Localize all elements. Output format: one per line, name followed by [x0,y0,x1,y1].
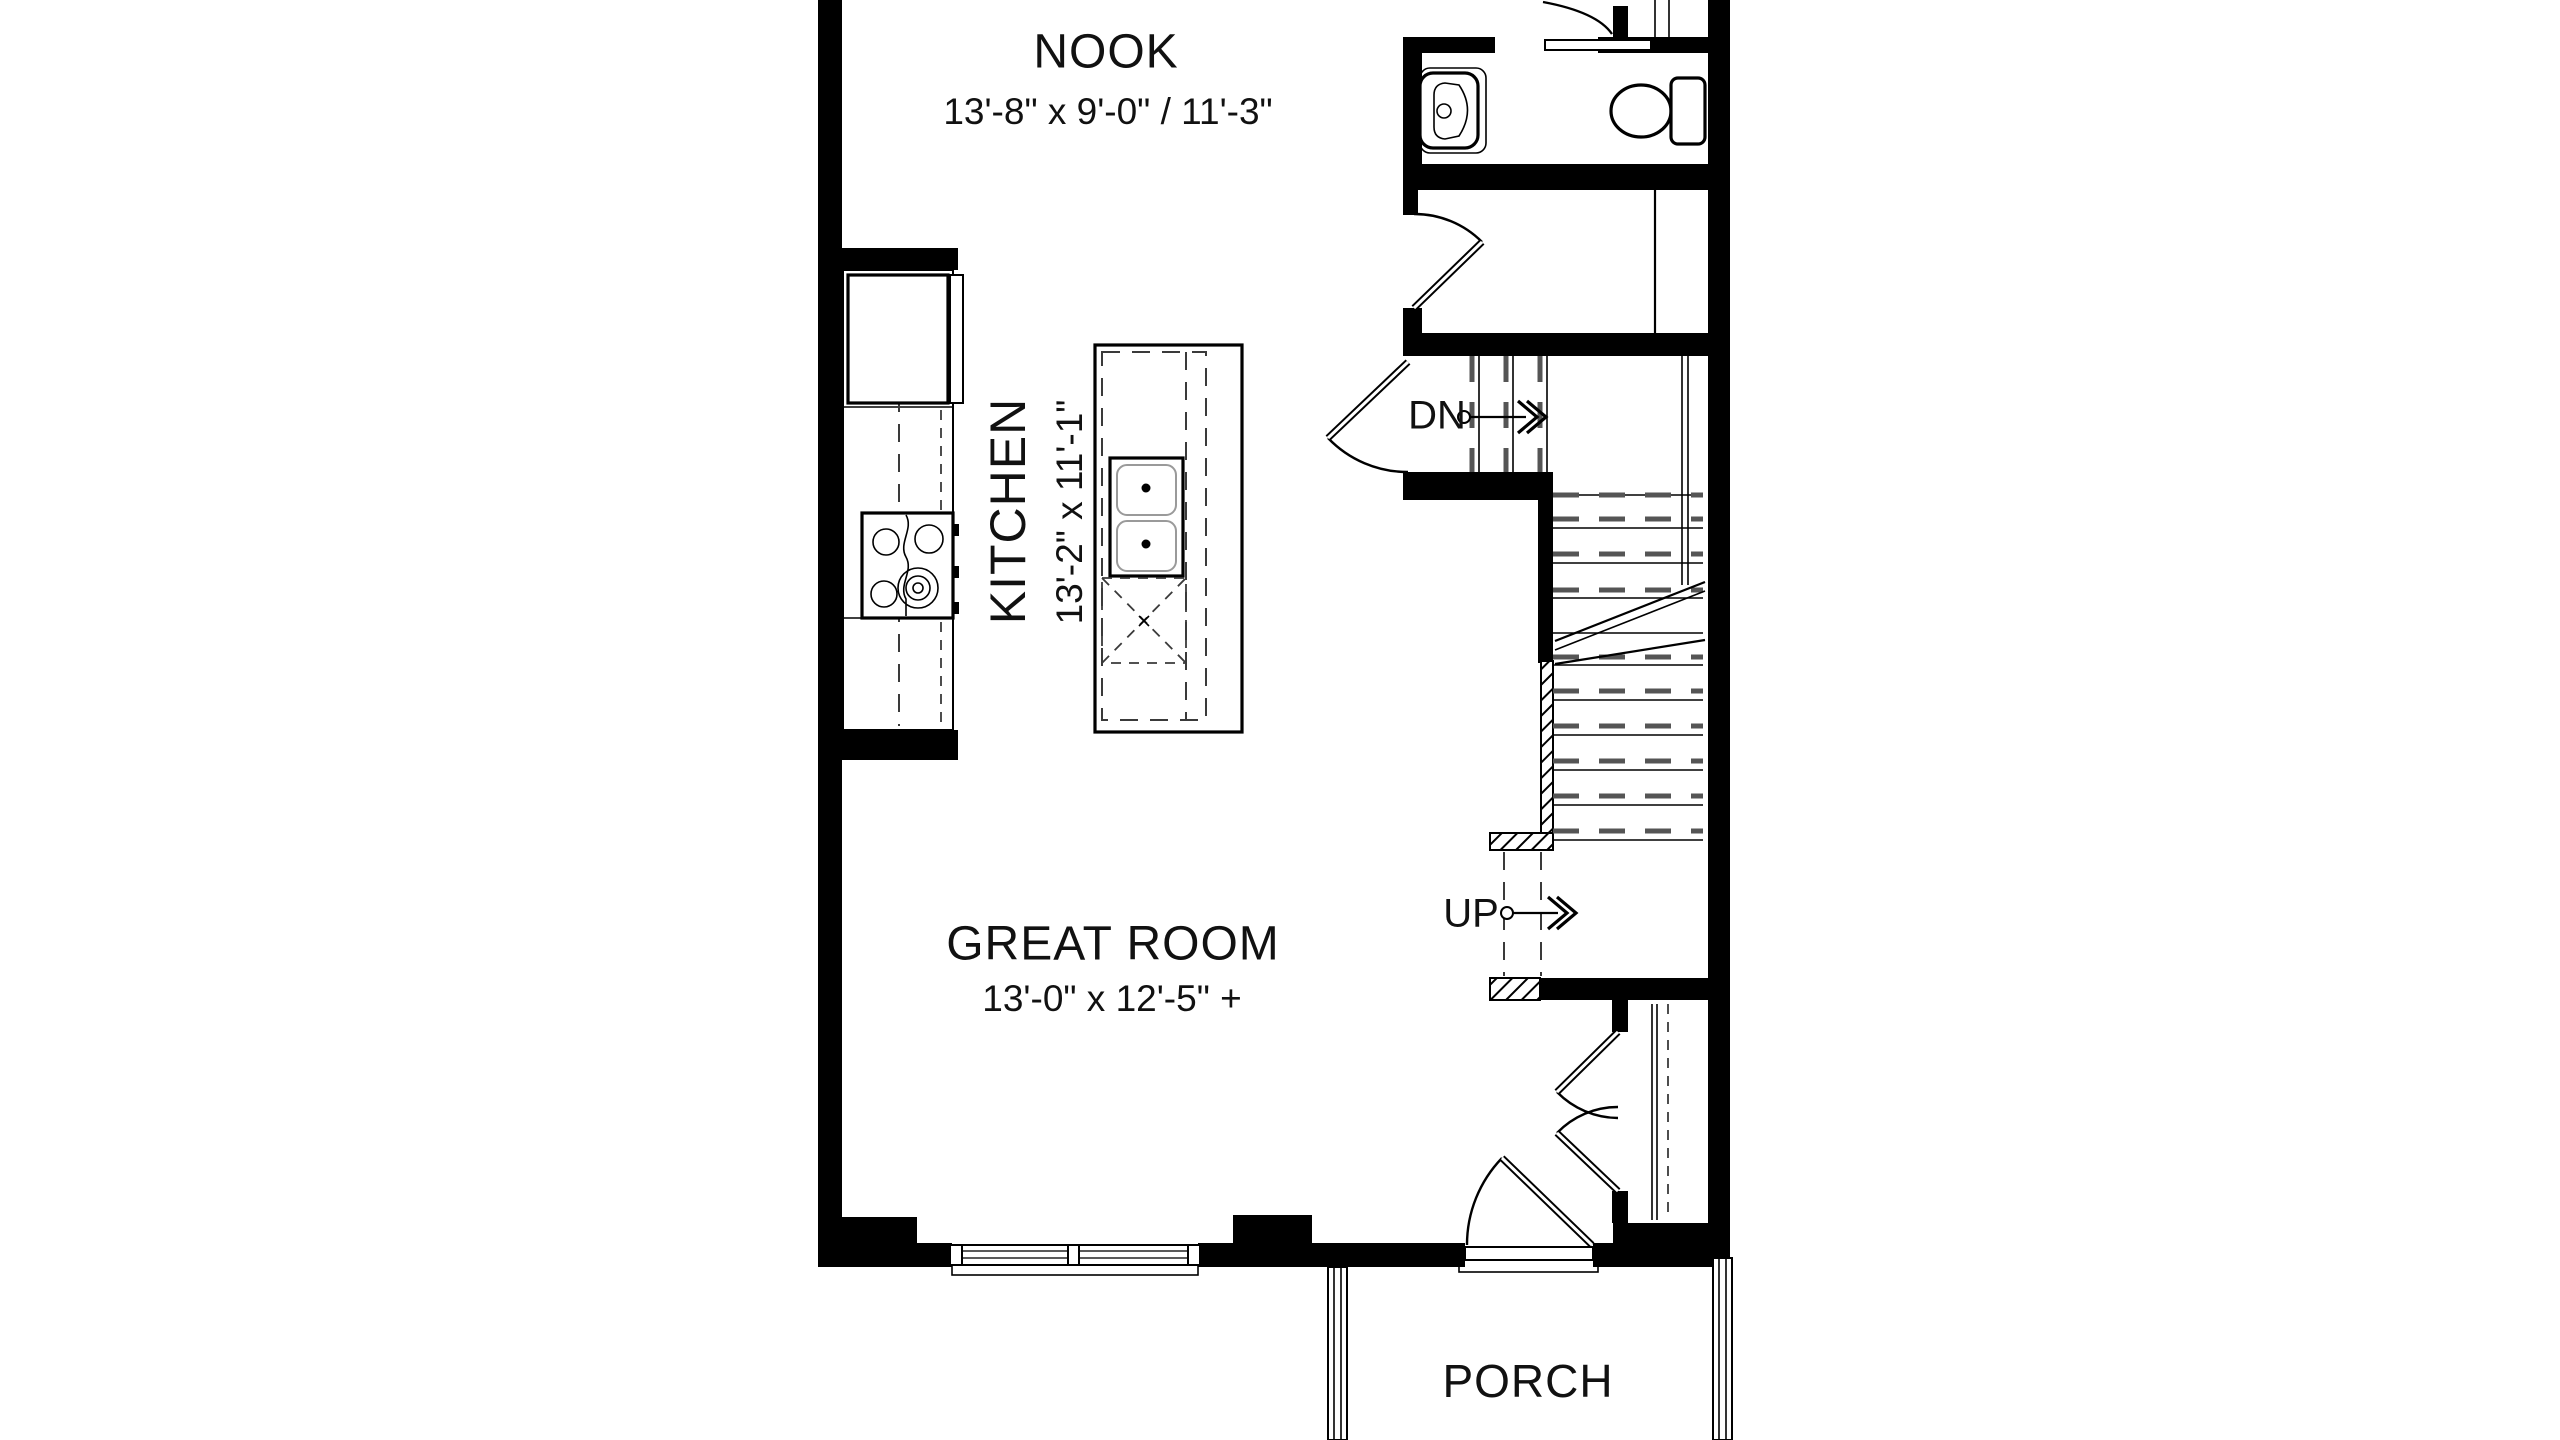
entry-closet-doors [1557,1032,1618,1191]
window-jamb-right [1188,1245,1200,1265]
floor-plan: NOOK 13'-8" x 9'-0" / 11'-3" KITCHEN 13'… [0,0,2560,1440]
stairs-up-treads [1553,495,1703,840]
range-knob [952,524,959,536]
closet-wall-bottom [1613,1223,1709,1247]
entry-closet [1652,1004,1668,1220]
front-door-threshold [1459,1247,1598,1272]
interior-walls [842,6,1710,1247]
stairs-down-label: DN [1408,394,1466,439]
kitchen-wall-top [842,248,958,270]
stairs-up [1501,495,1705,976]
left-exterior-wall [818,0,842,1267]
closet-jamb-bottom [1612,1191,1628,1223]
hall-wall-stub-lower [1403,308,1422,335]
upper-door-swing-cutoff [1543,2,1612,34]
kitchen-label: KITCHEN [979,398,1037,624]
wall-stub-above-bath [1613,6,1628,37]
island-sink [1110,458,1183,576]
front-door [1467,1158,1592,1245]
stair-half-wall-stub-lower [1490,978,1540,1000]
stair-wall-bottom [1540,978,1710,1000]
range-knob [952,602,959,614]
porch-railing-left [1328,1267,1347,1440]
kitchen-dimensions: 13'-2" x 11'-1" [1049,400,1091,625]
pocket-door [1545,40,1651,50]
great-room-label: GREAT ROOM [946,917,1280,972]
range-knob [952,566,959,578]
nook-dimensions: 13'-8" x 9'-0" / 11'-3" [943,91,1272,133]
stairs-up-arrow [1501,897,1576,929]
kitchen-wall-bottom [842,730,958,760]
stairs-up-label: UP [1443,892,1499,937]
stair-wall-mid [1403,472,1553,500]
closet-jamb-top [1612,1000,1628,1032]
toilet [1611,78,1705,144]
stairwell-wall-left [1538,498,1553,663]
refrigerator [848,275,963,403]
range-cooktop [862,513,959,618]
powder-sink [1420,68,1486,153]
powder-hall-door [1414,214,1482,308]
powder-room [1420,40,1705,153]
stairs-up-winders [1555,582,1705,664]
right-exterior-wall [1708,0,1730,1252]
nook-label: NOOK [1033,25,1178,80]
bottom-wall-left-segment [830,1243,952,1267]
great-room-window [950,1245,1200,1275]
stair-half-walls [1490,661,1553,1000]
window-sill [952,1265,1198,1275]
stair-half-wall-stub-upper [1490,833,1553,850]
stair-half-wall-vertical [1541,661,1553,850]
window-mullion [1068,1245,1079,1265]
kitchen-island [1095,345,1242,732]
basement-stair-door [1328,362,1408,472]
bath-wall-bottom [1403,164,1710,190]
porch-label: PORCH [1442,1354,1613,1408]
porch-railing-right [1713,1258,1732,1440]
bottom-wall-pillar [1233,1215,1312,1267]
window-jamb-left [950,1245,962,1265]
stairs-down [1458,356,1547,472]
hall-wall-stub-upper [1403,190,1418,215]
stair-wall-top [1403,333,1708,356]
floor-plan-drawing [0,0,2560,1440]
great-room-dimensions: 13'-0" x 12'-5" + [982,978,1241,1020]
